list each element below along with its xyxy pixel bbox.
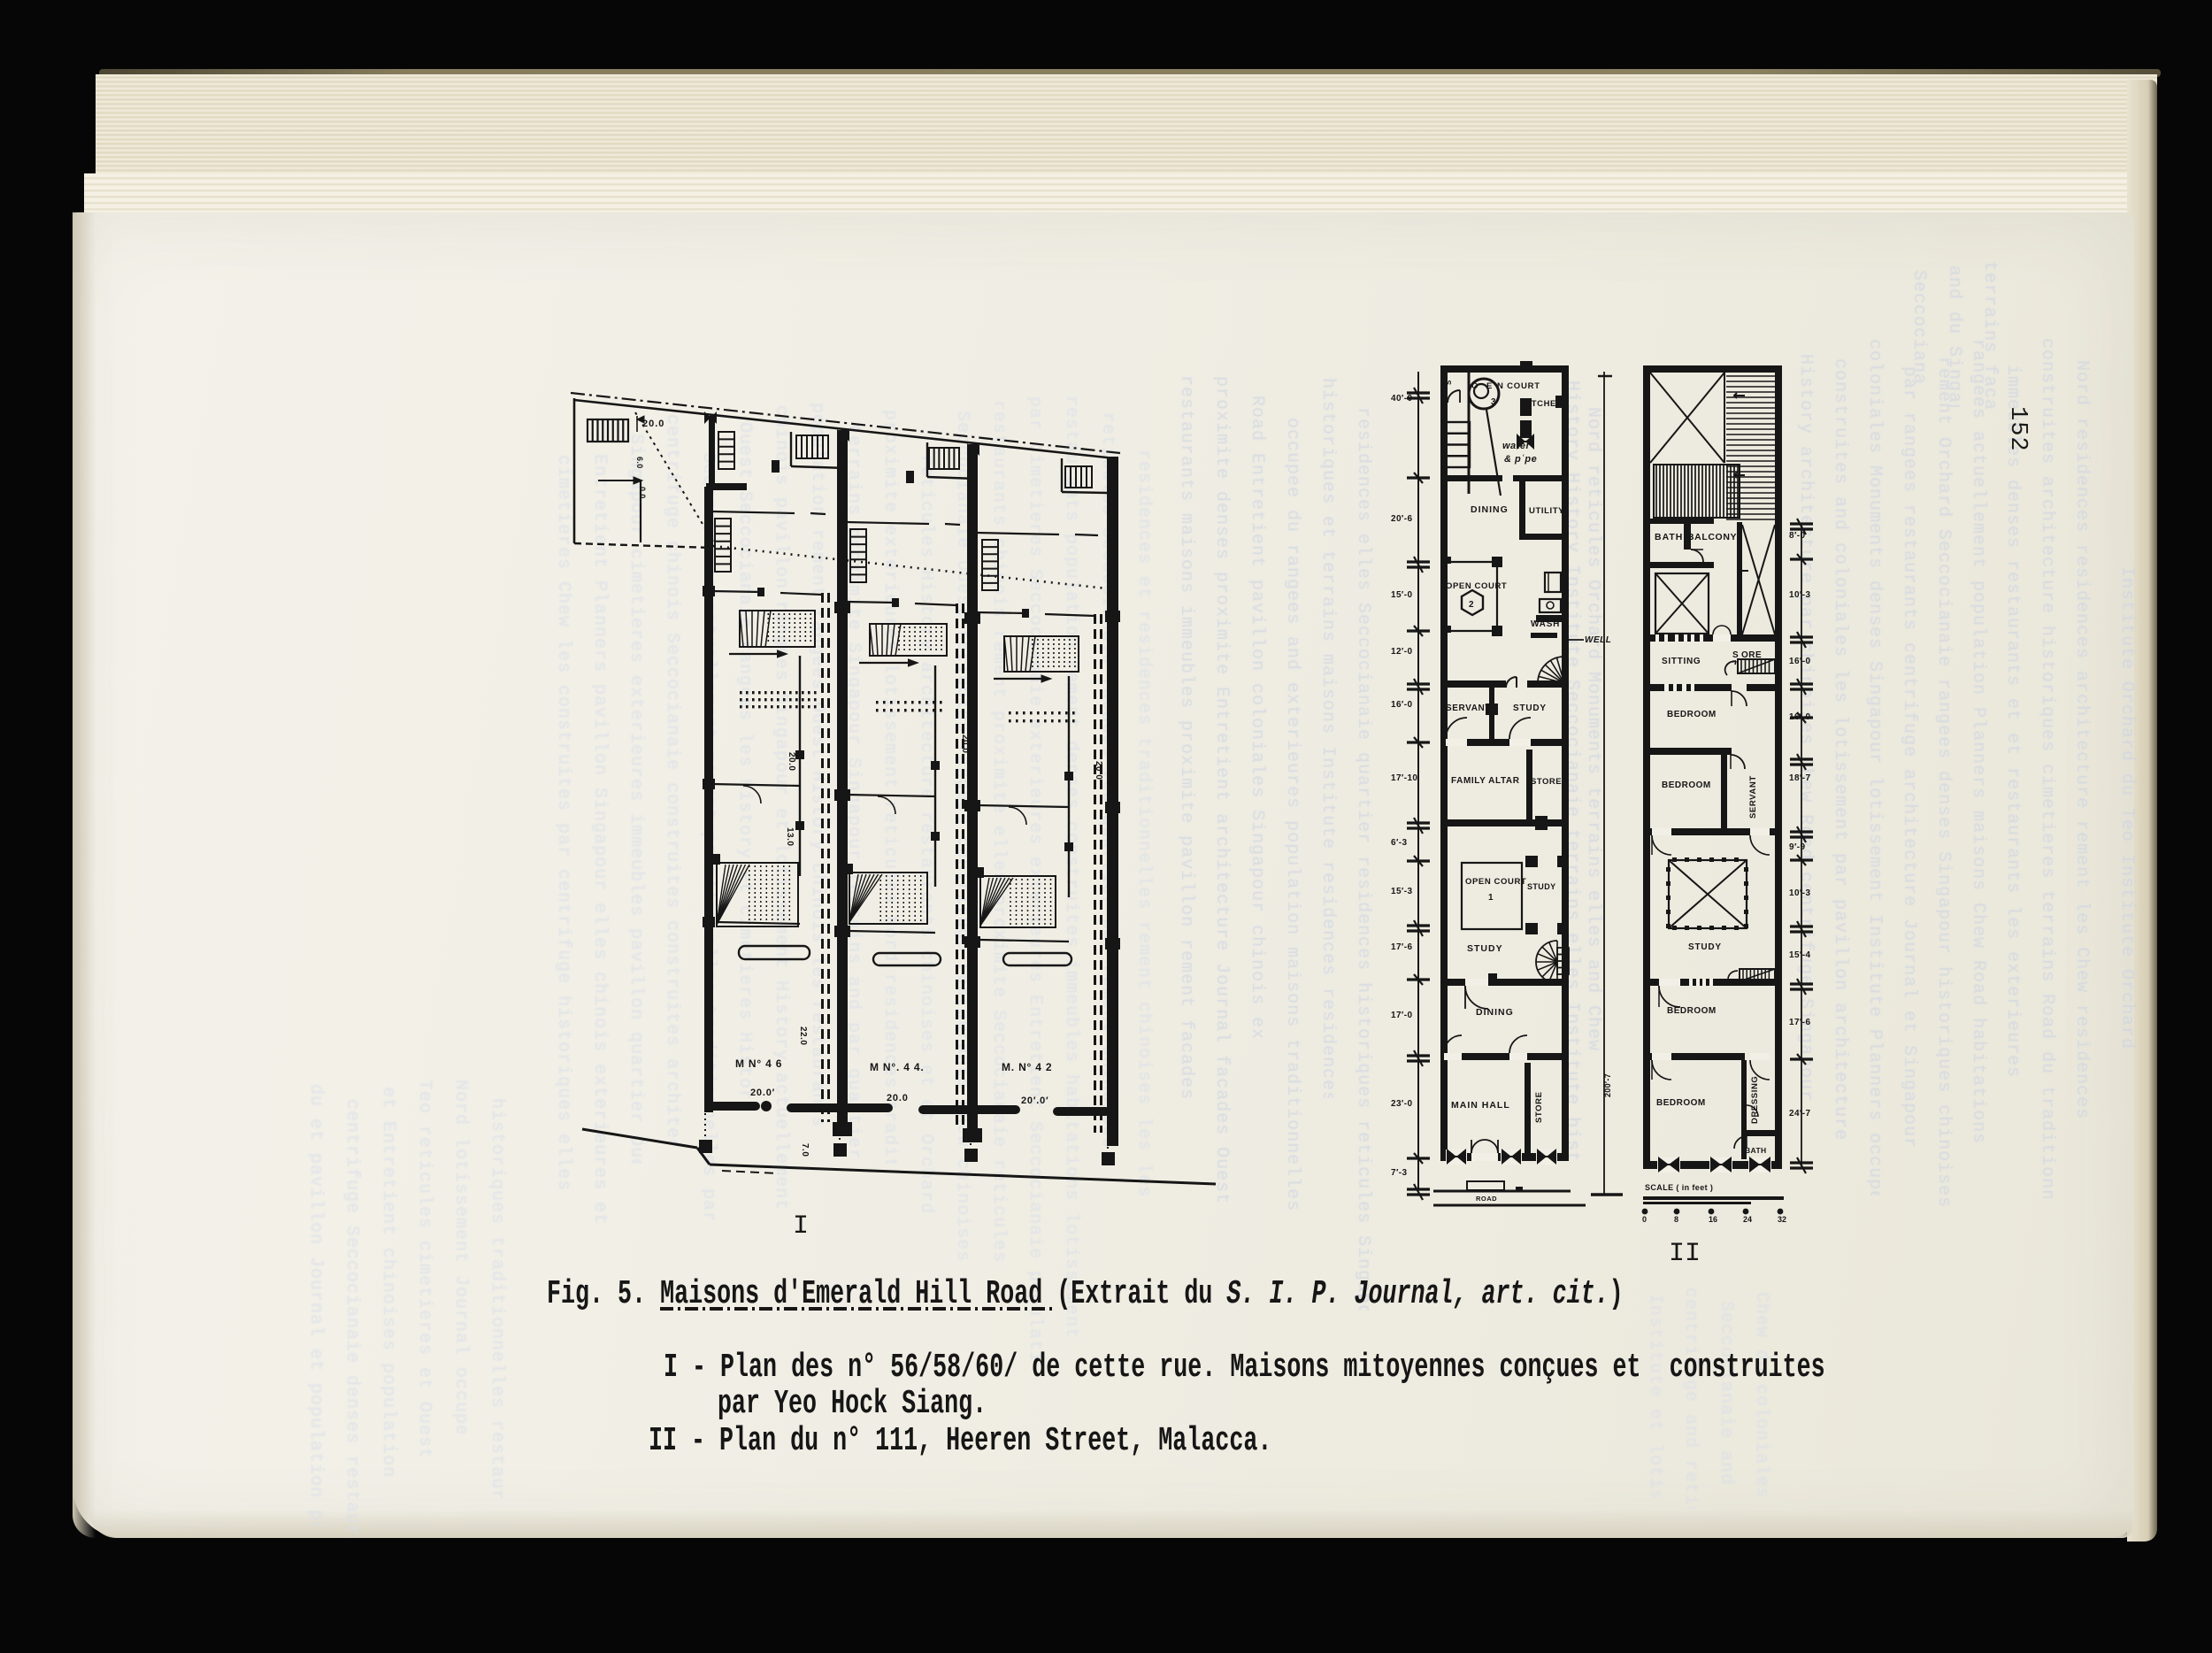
svg-text:SCALE ( in feet ): SCALE ( in feet ) <box>1645 1183 1713 1192</box>
svg-text:20.0: 20.0 <box>787 752 796 771</box>
svg-text:STORE: STORE <box>1531 777 1562 787</box>
svg-text:12′-0: 12′-0 <box>1391 647 1412 657</box>
svg-text:WELL: WELL <box>1585 635 1611 645</box>
svg-text:BEDROOM: BEDROOM <box>1667 1006 1717 1016</box>
svg-text:10′-3: 10′-3 <box>1789 590 1810 600</box>
svg-text:7.0: 7.0 <box>800 1143 810 1157</box>
svg-text:SITTING: SITTING <box>1662 657 1701 666</box>
svg-text:STORE: STORE <box>1534 1091 1544 1123</box>
svg-text:24: 24 <box>1743 1215 1752 1224</box>
svg-text:8′-0: 8′-0 <box>1789 531 1805 541</box>
svg-text:16′-0: 16′-0 <box>1789 657 1810 666</box>
svg-text:OPEN COURT: OPEN COURT <box>1446 581 1507 591</box>
svg-text:water: water <box>1502 441 1530 451</box>
svg-text:16: 16 <box>1709 1215 1717 1224</box>
svg-text:17′-6: 17′-6 <box>1789 1018 1810 1027</box>
svg-text:20 0: 20 0 <box>960 734 970 753</box>
svg-text:S: S <box>1445 379 1453 385</box>
svg-text:DINING: DINING <box>1471 504 1509 515</box>
svg-text:17′-6: 17′-6 <box>1391 942 1412 952</box>
svg-text:1: 1 <box>1488 893 1494 903</box>
svg-text:200′-7: 200′-7 <box>1603 1073 1612 1097</box>
svg-text:M N°. 4 4.: M N°. 4 4. <box>870 1061 924 1073</box>
svg-text:18′-7: 18′-7 <box>1789 773 1810 783</box>
svg-text:& pʿpe: & pʿpe <box>1504 454 1537 465</box>
svg-text:N COURT: N COURT <box>1497 381 1540 391</box>
svg-text:BEDROOM: BEDROOM <box>1656 1098 1706 1108</box>
svg-text:II: II <box>1669 1239 1701 1269</box>
svg-text:10′-3: 10′-3 <box>1789 888 1810 898</box>
svg-text:M N° 4 6: M N° 4 6 <box>735 1057 782 1070</box>
svg-text:17′-10: 17′-10 <box>1391 773 1417 783</box>
svg-text:20′.0′: 20′.0′ <box>1021 1096 1048 1106</box>
svg-text:BEDROOM: BEDROOM <box>1662 780 1711 790</box>
svg-text:16′-0: 16′-0 <box>1391 700 1412 710</box>
svg-text:STUDY: STUDY <box>1467 943 1503 954</box>
svg-text:6′-3: 6′-3 <box>1391 838 1407 848</box>
svg-text:STUDY: STUDY <box>1688 942 1722 952</box>
svg-text:STUDY: STUDY <box>1527 882 1556 891</box>
svg-text:17′-0: 17′-0 <box>1391 1011 1412 1020</box>
svg-text:OPEN COURT: OPEN COURT <box>1465 877 1526 887</box>
svg-text:15′-3: 15′-3 <box>1391 887 1412 896</box>
svg-text:DINING: DINING <box>1476 1007 1514 1018</box>
svg-text:ROAD: ROAD <box>1476 1195 1497 1203</box>
svg-text:15′-4: 15′-4 <box>1789 950 1810 960</box>
svg-text:BALCONY: BALCONY <box>1687 532 1737 542</box>
svg-text:SERVANT: SERVANT <box>1748 775 1758 819</box>
svg-text:16′-0: 16′-0 <box>1789 712 1810 722</box>
svg-text:8: 8 <box>1674 1215 1678 1224</box>
svg-text:9′-9: 9′-9 <box>1789 842 1805 852</box>
svg-text:20 0: 20 0 <box>1094 761 1103 780</box>
svg-text:20.0: 20.0 <box>887 1093 909 1103</box>
svg-text:STUDY: STUDY <box>1513 703 1547 713</box>
svg-text:22.0: 22.0 <box>798 1026 808 1045</box>
svg-text:20.0: 20.0 <box>642 419 664 429</box>
svg-text:0.0: 0.0 <box>638 487 647 499</box>
svg-text:SERVANT: SERVANT <box>1446 703 1491 713</box>
svg-text:BATH: BATH <box>1745 1146 1767 1155</box>
svg-text:MAIN HALL: MAIN HALL <box>1451 1100 1510 1111</box>
svg-text:FAMILY ALTAR: FAMILY ALTAR <box>1451 776 1520 786</box>
svg-text:20.0′: 20.0′ <box>750 1088 775 1098</box>
svg-text:I: I <box>793 1211 809 1242</box>
svg-text:23′-0: 23′-0 <box>1391 1099 1412 1109</box>
svg-text:24′-7: 24′-7 <box>1789 1109 1810 1119</box>
svg-text:M. N° 4 2: M. N° 4 2 <box>1002 1061 1052 1073</box>
svg-text:7′-3: 7′-3 <box>1391 1168 1407 1178</box>
svg-text:20′-6: 20′-6 <box>1391 514 1412 524</box>
svg-text:BEDROOM: BEDROOM <box>1667 710 1717 719</box>
svg-text:WASH: WASH <box>1531 619 1560 629</box>
svg-text:32: 32 <box>1778 1215 1786 1224</box>
svg-text:UTILITY: UTILITY <box>1529 506 1564 516</box>
svg-text:6.0: 6.0 <box>635 457 644 469</box>
svg-text:13.0: 13.0 <box>785 827 795 846</box>
svg-text:BATH: BATH <box>1655 532 1683 542</box>
svg-text:15′-0: 15′-0 <box>1391 590 1412 600</box>
svg-text:0: 0 <box>1642 1215 1647 1224</box>
svg-text:2: 2 <box>1469 600 1475 610</box>
svg-text:40′-0: 40′-0 <box>1391 394 1412 404</box>
